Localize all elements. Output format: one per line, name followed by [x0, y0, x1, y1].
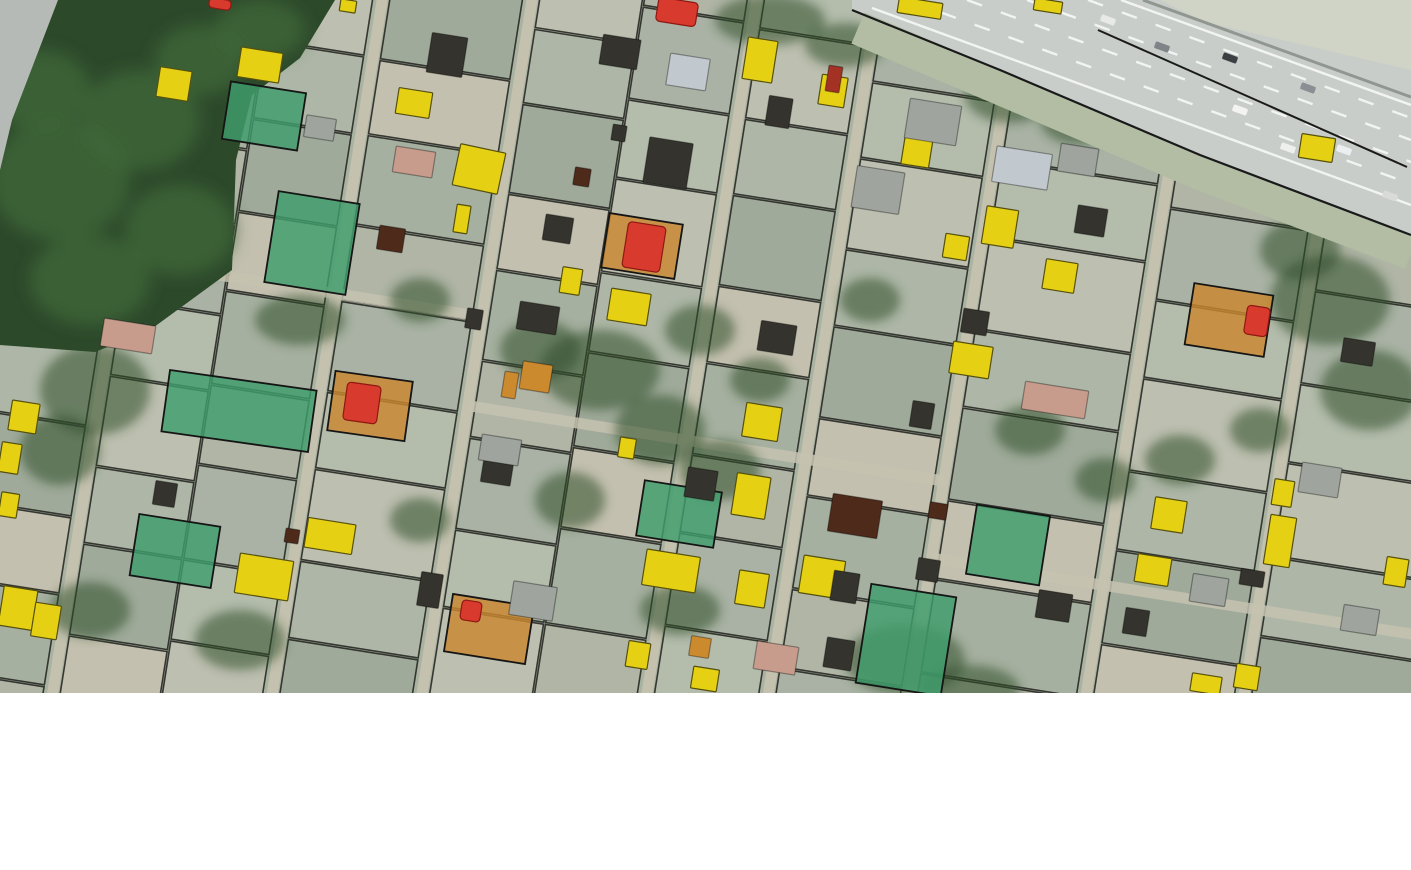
yellow-building: [690, 666, 719, 692]
brown-building: [284, 528, 300, 544]
yellow-building: [8, 400, 40, 434]
dark-building: [1340, 338, 1375, 367]
dark-building: [909, 400, 935, 429]
gray-building: [303, 115, 336, 141]
dark-building: [830, 570, 860, 604]
yellow-building: [156, 67, 192, 102]
slate-building: [666, 53, 711, 91]
dark-building: [684, 467, 718, 501]
green-parcel-overlay: [264, 191, 359, 295]
yellow-building: [0, 442, 22, 475]
white-margin: [0, 693, 1411, 870]
tree-cluster: [195, 610, 285, 670]
gray-building: [1057, 143, 1099, 177]
page: [0, 0, 1411, 870]
yellow-building: [949, 341, 994, 379]
tree-cluster: [390, 278, 450, 322]
brown-building: [928, 502, 948, 521]
yellow-building: [1298, 133, 1335, 162]
dark-building: [465, 308, 484, 330]
yellow-building: [31, 602, 62, 640]
gray-building: [1189, 573, 1229, 606]
yellow-building: [981, 206, 1019, 249]
tree-cluster: [1145, 435, 1215, 485]
yellow-building: [618, 437, 637, 459]
red-building: [1243, 305, 1270, 337]
dark-building: [416, 571, 443, 608]
gray-building: [509, 581, 558, 621]
dark-building: [152, 480, 177, 507]
dark-building: [1239, 568, 1265, 588]
yellow-building: [607, 288, 652, 326]
gray-building: [1340, 604, 1380, 635]
yellow-building: [735, 570, 770, 608]
dark-building: [516, 301, 560, 335]
dark-building: [765, 95, 793, 128]
tree-cluster: [730, 358, 790, 402]
green-parcel-overlay: [856, 584, 957, 693]
gray-building: [478, 434, 522, 466]
yellow-building: [234, 553, 294, 601]
gray-building: [904, 98, 962, 146]
tree-cluster: [390, 498, 450, 542]
tree-cluster: [50, 582, 130, 638]
tree-cluster: [255, 295, 345, 345]
dark-building: [542, 214, 574, 244]
gray-building: [851, 166, 905, 215]
brown-building: [573, 167, 592, 187]
yellow-building: [742, 37, 778, 83]
green-parcel-overlay: [130, 514, 221, 588]
satellite-map-image: [0, 0, 1411, 698]
orangeb-building: [689, 636, 712, 659]
parcel: [820, 327, 956, 436]
tree-cluster: [840, 278, 900, 322]
red-building: [460, 600, 483, 623]
yellow-building: [339, 0, 357, 13]
dark-building: [757, 320, 797, 355]
orangeb-building: [519, 361, 553, 393]
dark-building: [915, 557, 940, 582]
dark-building: [1035, 590, 1073, 623]
yellow-building: [1042, 259, 1078, 294]
tree-cluster: [1230, 408, 1290, 452]
green-parcel-overlay: [966, 505, 1050, 586]
forest-canopy: [125, 185, 235, 275]
tree-cluster: [535, 472, 605, 528]
brown-building: [376, 225, 405, 253]
red-building: [343, 382, 382, 424]
yellow-building: [1151, 497, 1188, 534]
parcel: [509, 105, 623, 209]
dark-building: [1074, 205, 1108, 237]
yellow-building: [1233, 663, 1260, 690]
tree-cluster: [640, 585, 720, 635]
parcel: [734, 120, 847, 210]
dark-building: [643, 137, 694, 189]
dark-building: [599, 34, 641, 70]
dark-building: [1122, 607, 1150, 636]
yellow-building: [625, 640, 651, 669]
yellow-building: [452, 144, 506, 195]
dark-building: [426, 32, 468, 77]
red-building: [622, 221, 667, 272]
yellow-building: [395, 88, 433, 119]
tree-cluster: [665, 305, 735, 355]
dark-building: [960, 308, 989, 336]
tree-cluster: [1075, 458, 1135, 502]
yellow-building: [1134, 554, 1172, 587]
yellow-building: [642, 549, 701, 593]
yellow-building: [731, 473, 771, 520]
dark-building: [611, 124, 627, 142]
gray-building: [1298, 462, 1342, 498]
green-parcel-overlay: [222, 81, 306, 150]
brown-building: [827, 493, 882, 538]
yellow-building: [742, 402, 783, 441]
dark-building: [823, 637, 855, 671]
yellow-building: [559, 267, 583, 296]
satellite-map: [0, 0, 1411, 693]
parcel: [719, 196, 835, 301]
yellow-building: [942, 233, 969, 260]
yellow-building: [1271, 479, 1295, 508]
yellow-building: [237, 47, 283, 83]
yellow-building: [0, 492, 20, 519]
yellow-building: [1383, 556, 1409, 587]
salmon-building: [753, 641, 799, 675]
salmon-building: [392, 146, 436, 178]
